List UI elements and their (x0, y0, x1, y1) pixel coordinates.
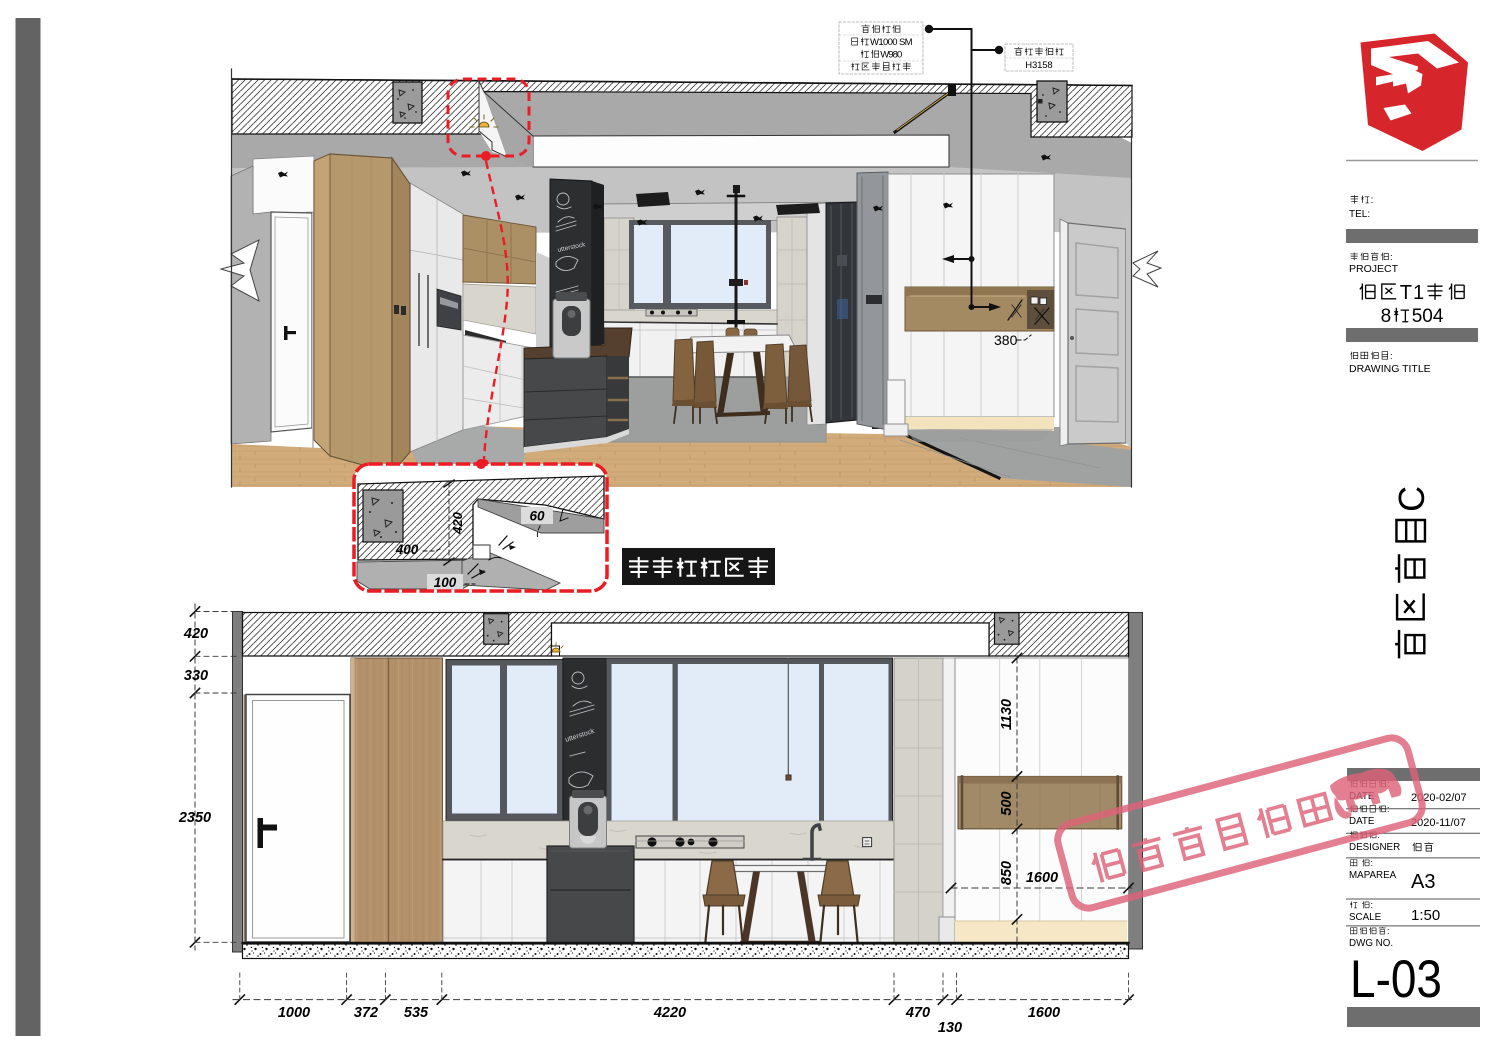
svg-text:8: 8 (1381, 306, 1392, 327)
svg-text:1600: 1600 (1026, 870, 1058, 886)
svg-text:PROJECT: PROJECT (1349, 263, 1399, 275)
svg-text:DRAWING TITLE: DRAWING TITLE (1349, 363, 1431, 375)
svg-text:60: 60 (529, 509, 545, 524)
svg-text:A3: A3 (1411, 871, 1435, 893)
svg-text:420: 420 (183, 626, 208, 642)
svg-text:420: 420 (450, 511, 465, 534)
svg-text:DESIGNER: DESIGNER (1349, 842, 1400, 853)
svg-text::: : (1390, 252, 1393, 263)
svg-text:SCALE: SCALE (1349, 912, 1382, 923)
svg-text:1:50: 1:50 (1411, 907, 1440, 924)
svg-text:W1000 SM: W1000 SM (870, 37, 913, 48)
svg-text:1600: 1600 (1028, 1005, 1060, 1021)
svg-text:130: 130 (938, 1020, 962, 1036)
svg-text::: : (1371, 858, 1373, 868)
svg-text:1000: 1000 (278, 1005, 310, 1021)
svg-text::: : (1371, 195, 1374, 206)
svg-text:TEL:: TEL: (1349, 209, 1370, 220)
svg-text:470: 470 (905, 1005, 930, 1021)
svg-text:500: 500 (999, 791, 1015, 815)
svg-text:W980: W980 (880, 50, 902, 61)
svg-text:535: 535 (404, 1005, 429, 1021)
svg-text:L-03: L-03 (1350, 950, 1442, 1009)
svg-text:DWG NO.: DWG NO. (1349, 938, 1393, 949)
svg-text:DATE: DATE (1349, 816, 1375, 827)
svg-text:850: 850 (999, 861, 1015, 885)
svg-text:2350: 2350 (178, 810, 211, 826)
svg-text:372: 372 (354, 1005, 378, 1021)
svg-text::: : (1390, 351, 1393, 362)
svg-text:H3158: H3158 (1025, 60, 1052, 71)
svg-text::: : (1371, 900, 1373, 910)
svg-text:504: 504 (1412, 306, 1444, 327)
svg-text:400: 400 (395, 542, 419, 557)
svg-text:4220: 4220 (653, 1005, 686, 1021)
svg-text:MAPAREA: MAPAREA (1349, 870, 1397, 881)
svg-text::: : (1387, 926, 1389, 936)
svg-text:1130: 1130 (999, 699, 1015, 730)
svg-text:C: C (1391, 486, 1432, 512)
svg-text:T1: T1 (1400, 282, 1424, 304)
svg-text:100: 100 (434, 575, 457, 590)
svg-text::: : (1387, 804, 1389, 814)
svg-text:380: 380 (994, 332, 1018, 348)
svg-text:330: 330 (184, 668, 208, 684)
